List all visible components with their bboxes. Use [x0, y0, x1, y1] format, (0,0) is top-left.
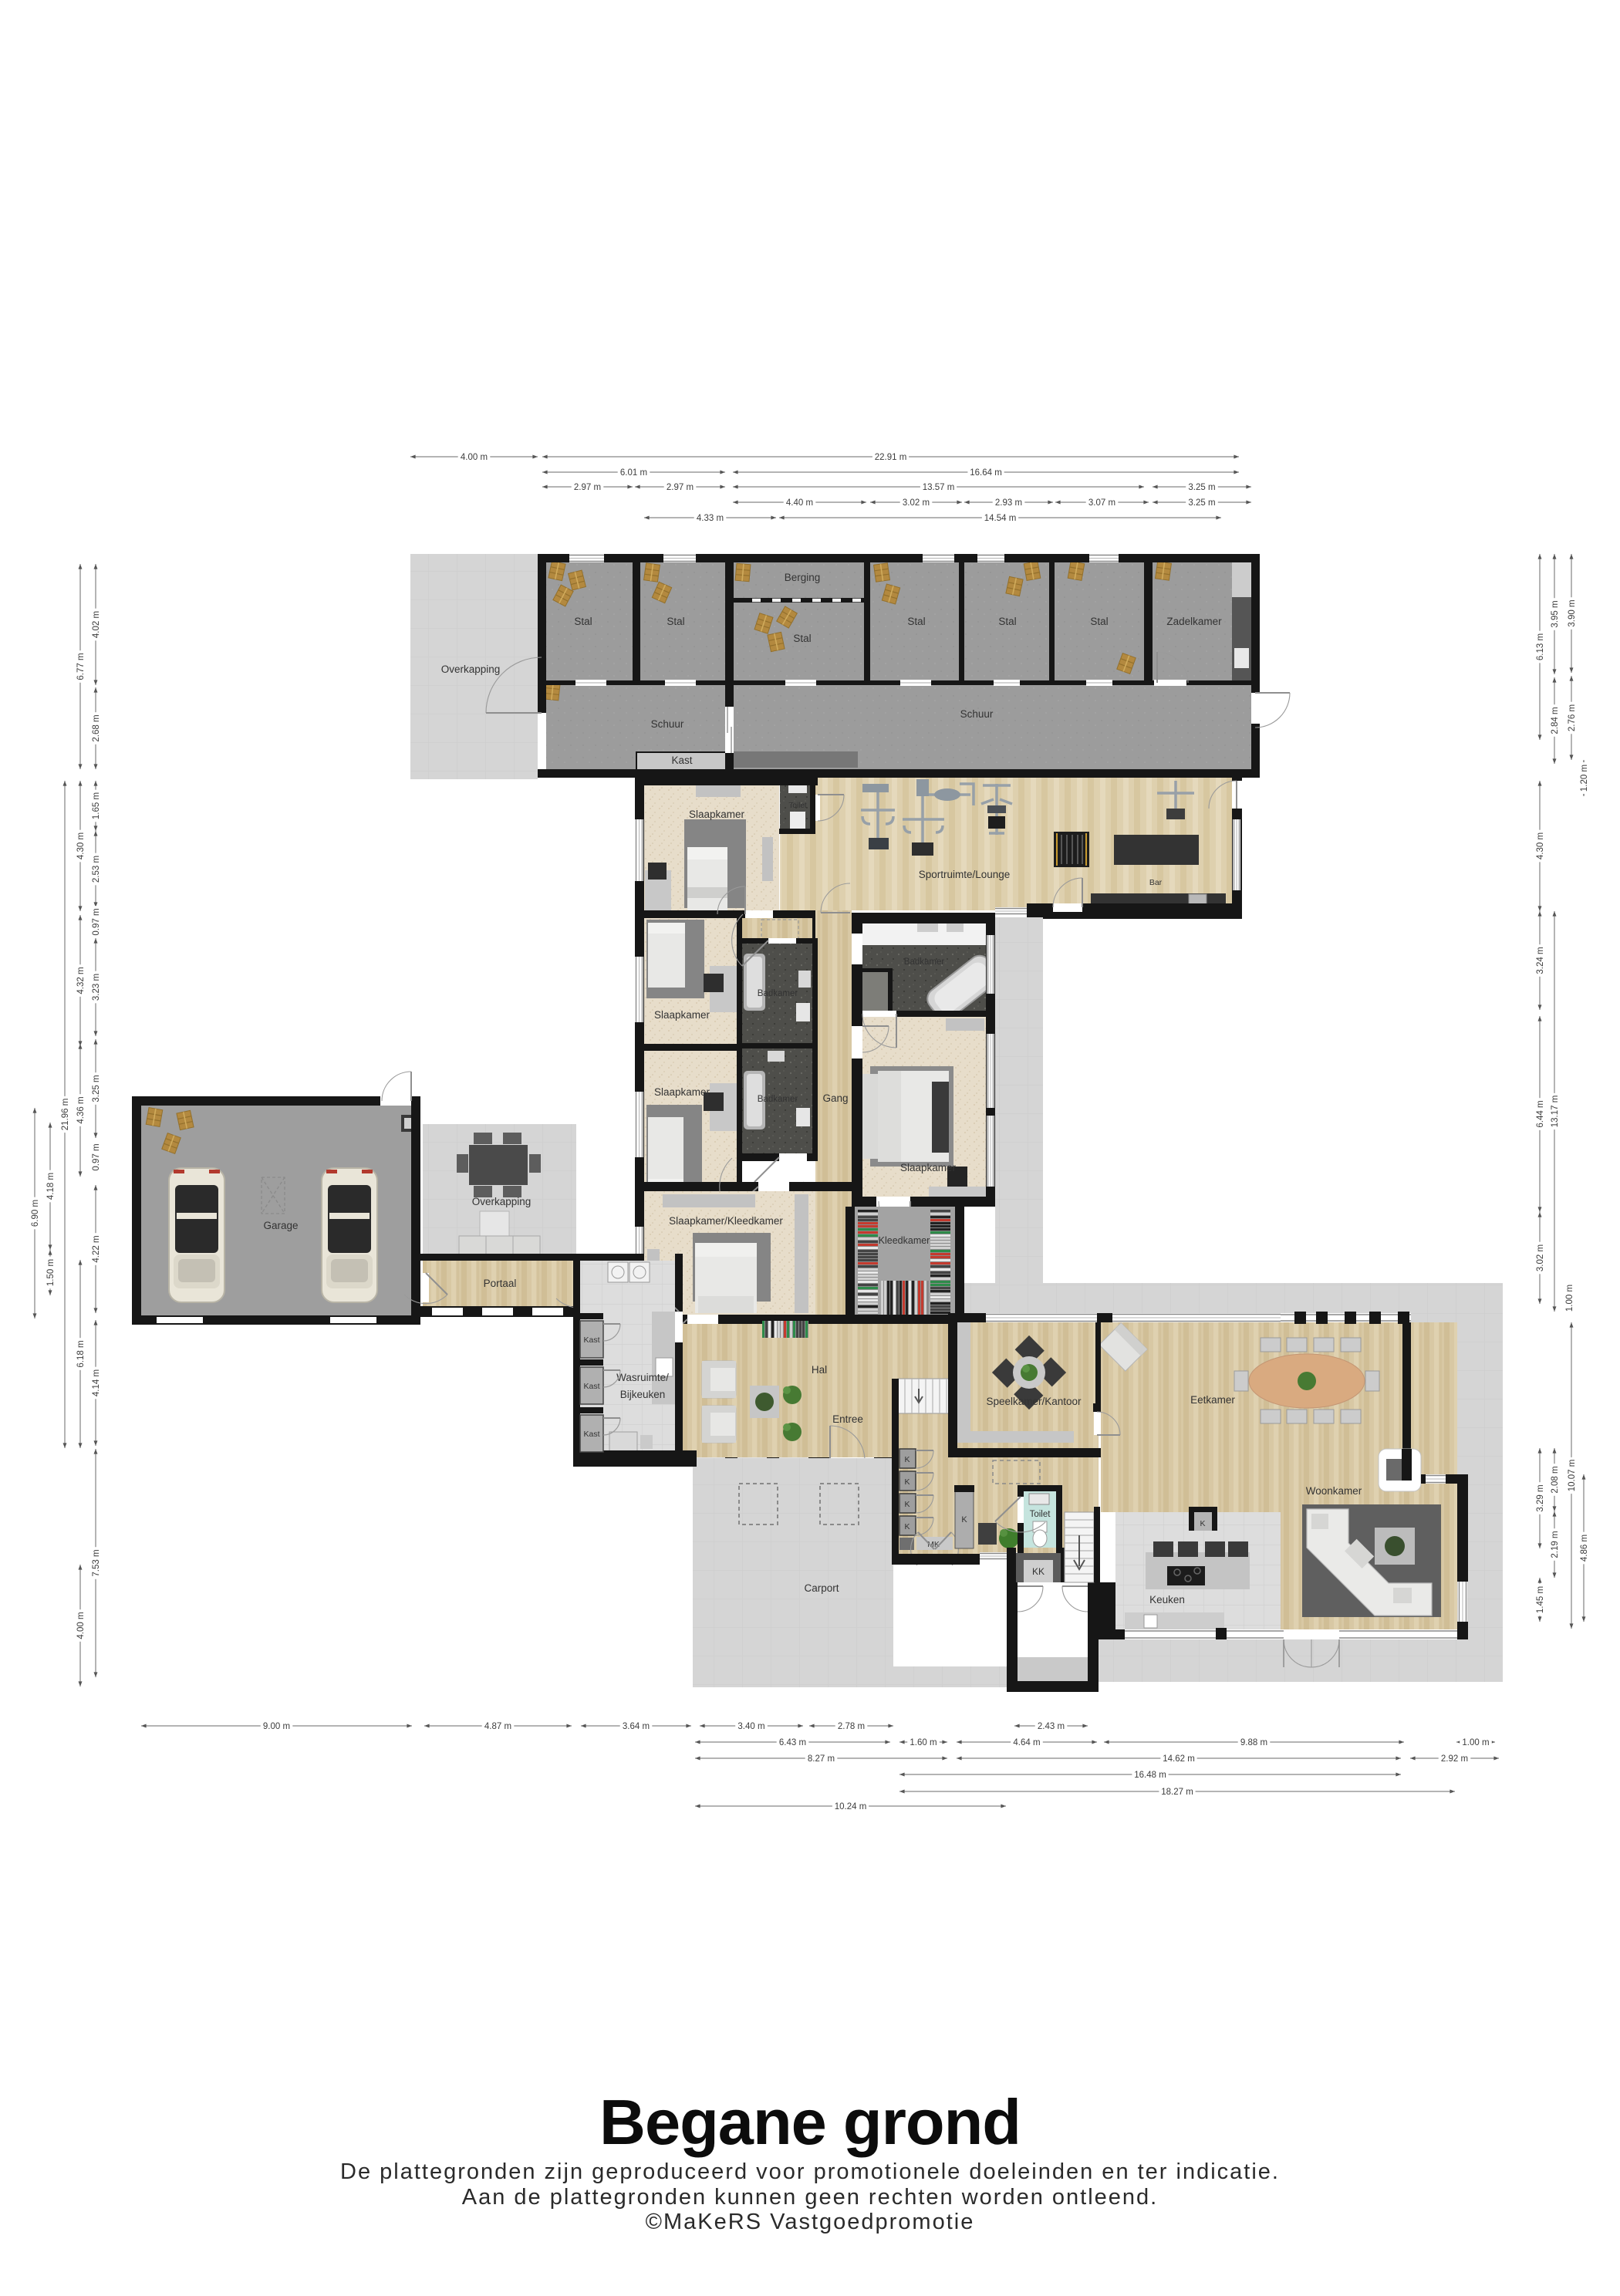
svg-text:3.02 m: 3.02 m: [903, 498, 930, 508]
svg-text:Stal: Stal: [998, 616, 1016, 627]
svg-text:4.87 m: 4.87 m: [484, 1722, 511, 1731]
svg-text:0.97 m: 0.97 m: [92, 1143, 101, 1170]
svg-text:2.68 m: 2.68 m: [92, 714, 101, 741]
svg-text:Stal: Stal: [667, 616, 684, 627]
svg-text:22.91 m: 22.91 m: [875, 453, 907, 462]
svg-text:2.53 m: 2.53 m: [92, 856, 101, 883]
svg-text:©MaKeRS Vastgoedpromotie: ©MaKeRS Vastgoedpromotie: [646, 2210, 975, 2234]
svg-text:Bijkeuken: Bijkeuken: [620, 1389, 666, 1400]
svg-text:Keuken: Keuken: [1149, 1594, 1185, 1606]
svg-text:3.07 m: 3.07 m: [1088, 498, 1115, 508]
svg-text:Badkamer: Badkamer: [758, 1095, 798, 1104]
svg-text:Badkamer: Badkamer: [904, 957, 945, 967]
svg-text:13.17 m: 13.17 m: [1551, 1096, 1560, 1128]
svg-text:3.02 m: 3.02 m: [1536, 1244, 1545, 1271]
svg-text:Carport: Carport: [804, 1582, 839, 1594]
svg-text:3.90 m: 3.90 m: [1568, 599, 1577, 626]
svg-text:4.14 m: 4.14 m: [92, 1369, 101, 1396]
svg-text:1.50 m: 1.50 m: [46, 1259, 56, 1286]
svg-text:Garage: Garage: [263, 1220, 298, 1231]
svg-text:Speelkamer/Kantoor: Speelkamer/Kantoor: [986, 1396, 1082, 1407]
svg-text:Entree: Entree: [832, 1413, 863, 1425]
svg-text:Slaapkamer: Slaapkamer: [654, 1009, 710, 1021]
svg-text:6.18 m: 6.18 m: [76, 1340, 86, 1367]
svg-text:Toilet: Toilet: [788, 802, 807, 810]
svg-text:3.95 m: 3.95 m: [1551, 600, 1560, 627]
svg-text:10.07 m: 10.07 m: [1568, 1460, 1577, 1492]
svg-text:Kast: Kast: [583, 1430, 599, 1439]
svg-text:3.64 m: 3.64 m: [623, 1722, 650, 1731]
svg-text:Wasruimte/: Wasruimte/: [616, 1372, 669, 1383]
svg-text:Stal: Stal: [907, 616, 925, 627]
svg-text:Aan de plattegronden kunnen ge: Aan de plattegronden kunnen geen rechten…: [462, 2185, 1158, 2210]
svg-text:Slaapkamer: Slaapkamer: [654, 1086, 710, 1098]
svg-text:0.97 m: 0.97 m: [92, 908, 101, 935]
svg-text:Kast: Kast: [583, 1382, 599, 1391]
svg-text:Stal: Stal: [793, 633, 811, 644]
svg-text:2.43 m: 2.43 m: [1038, 1722, 1065, 1731]
svg-text:Slaapkamer/Kleedkamer: Slaapkamer/Kleedkamer: [669, 1215, 783, 1227]
svg-text:4.32 m: 4.32 m: [76, 967, 86, 994]
svg-text:3.24 m: 3.24 m: [1536, 947, 1545, 974]
svg-text:Hal: Hal: [812, 1364, 827, 1376]
svg-text:Eetkamer: Eetkamer: [1190, 1394, 1235, 1406]
svg-text:4.86 m: 4.86 m: [1580, 1535, 1589, 1562]
svg-text:2.08 m: 2.08 m: [1551, 1466, 1560, 1493]
svg-text:Badkamer: Badkamer: [758, 989, 798, 998]
svg-text:Gang: Gang: [822, 1092, 848, 1104]
svg-text:6.01 m: 6.01 m: [620, 468, 647, 478]
svg-text:4.30 m: 4.30 m: [76, 832, 86, 859]
svg-text:4.64 m: 4.64 m: [1013, 1738, 1040, 1747]
svg-text:3.25 m: 3.25 m: [92, 1075, 101, 1102]
svg-text:18.27 m: 18.27 m: [1161, 1788, 1193, 1797]
svg-text:1.00 m: 1.00 m: [1462, 1738, 1489, 1747]
svg-text:9.00 m: 9.00 m: [263, 1722, 290, 1731]
svg-text:3.29 m: 3.29 m: [1536, 1484, 1545, 1511]
svg-text:K: K: [904, 1522, 910, 1531]
svg-text:3.25 m: 3.25 m: [1188, 498, 1215, 508]
svg-text:4.40 m: 4.40 m: [786, 498, 813, 508]
svg-text:13.57 m: 13.57 m: [923, 483, 955, 492]
svg-text:14.54 m: 14.54 m: [984, 514, 1017, 523]
svg-text:Kleedkamer: Kleedkamer: [879, 1235, 930, 1246]
svg-text:2.97 m: 2.97 m: [574, 483, 601, 492]
svg-text:Woonkamer: Woonkamer: [1306, 1485, 1362, 1497]
svg-text:De plattegronden zijn geproduc: De plattegronden zijn geproduceerd voor …: [340, 2159, 1280, 2184]
svg-text:1.00 m: 1.00 m: [1565, 1285, 1574, 1312]
svg-text:Stal: Stal: [574, 616, 592, 627]
svg-text:6.77 m: 6.77 m: [76, 653, 86, 680]
svg-text:K: K: [961, 1515, 967, 1524]
svg-text:1.60 m: 1.60 m: [910, 1738, 937, 1747]
svg-text:4.02 m: 4.02 m: [92, 611, 101, 638]
svg-text:3.25 m: 3.25 m: [1188, 483, 1215, 492]
svg-text:Bar: Bar: [1149, 878, 1163, 887]
svg-text:7.53 m: 7.53 m: [92, 1549, 101, 1576]
svg-text:Slaapkamer: Slaapkamer: [689, 809, 745, 820]
svg-text:4.22 m: 4.22 m: [92, 1235, 101, 1262]
svg-text:14.62 m: 14.62 m: [1163, 1754, 1195, 1764]
svg-text:16.64 m: 16.64 m: [970, 468, 1002, 478]
svg-text:2.93 m: 2.93 m: [995, 498, 1022, 508]
svg-text:Kast: Kast: [583, 1335, 599, 1345]
svg-text:KK: KK: [1032, 1566, 1045, 1577]
svg-text:4.00 m: 4.00 m: [461, 453, 488, 462]
svg-text:3.23 m: 3.23 m: [92, 974, 101, 1001]
svg-text:2.76 m: 2.76 m: [1568, 704, 1577, 731]
svg-text:Zadelkamer: Zadelkamer: [1166, 616, 1222, 627]
svg-text:4.30 m: 4.30 m: [1536, 832, 1545, 859]
svg-text:4.36 m: 4.36 m: [76, 1096, 86, 1123]
svg-text:21.96 m: 21.96 m: [61, 1099, 70, 1131]
svg-text:6.43 m: 6.43 m: [779, 1738, 806, 1747]
svg-text:2.19 m: 2.19 m: [1551, 1531, 1560, 1558]
svg-text:8.27 m: 8.27 m: [808, 1754, 835, 1764]
svg-text:2.97 m: 2.97 m: [667, 483, 694, 492]
svg-text:K: K: [1200, 1519, 1205, 1528]
svg-text:Stal: Stal: [1090, 616, 1108, 627]
svg-text:K: K: [904, 1500, 910, 1509]
svg-text:6.90 m: 6.90 m: [31, 1200, 40, 1227]
svg-text:Schuur: Schuur: [651, 718, 684, 730]
svg-text:2.92 m: 2.92 m: [1441, 1754, 1468, 1764]
svg-text:6.44 m: 6.44 m: [1536, 1100, 1545, 1127]
svg-text:1.20 m: 1.20 m: [1580, 765, 1589, 792]
svg-text:2.78 m: 2.78 m: [838, 1722, 865, 1731]
svg-text:Schuur: Schuur: [960, 708, 994, 720]
svg-text:1.65 m: 1.65 m: [92, 792, 101, 819]
svg-text:K: K: [904, 1477, 910, 1487]
svg-text:Kast: Kast: [671, 755, 692, 766]
svg-text:Begane grond: Begane grond: [599, 2086, 1021, 2158]
svg-text:Portaal: Portaal: [484, 1278, 517, 1289]
svg-text:Overkapping: Overkapping: [472, 1196, 532, 1207]
svg-text:Slaapkamer: Slaapkamer: [900, 1162, 957, 1173]
svg-text:K: K: [904, 1455, 910, 1464]
svg-text:2.84 m: 2.84 m: [1551, 707, 1560, 734]
svg-text:Berging: Berging: [785, 572, 821, 583]
svg-text:6.13 m: 6.13 m: [1536, 633, 1545, 660]
svg-text:Toilet: Toilet: [1030, 1510, 1051, 1519]
svg-text:9.88 m: 9.88 m: [1240, 1738, 1267, 1747]
svg-text:Overkapping: Overkapping: [441, 663, 501, 675]
svg-text:3.40 m: 3.40 m: [737, 1722, 764, 1731]
svg-text:16.48 m: 16.48 m: [1134, 1771, 1166, 1780]
svg-text:4.18 m: 4.18 m: [46, 1173, 56, 1200]
svg-text:1.45 m: 1.45 m: [1536, 1586, 1545, 1613]
svg-text:4.33 m: 4.33 m: [697, 514, 724, 523]
svg-text:4.00 m: 4.00 m: [76, 1612, 86, 1639]
svg-text:Sportruimte/Lounge: Sportruimte/Lounge: [919, 869, 1011, 880]
svg-text:10.24 m: 10.24 m: [835, 1802, 867, 1811]
